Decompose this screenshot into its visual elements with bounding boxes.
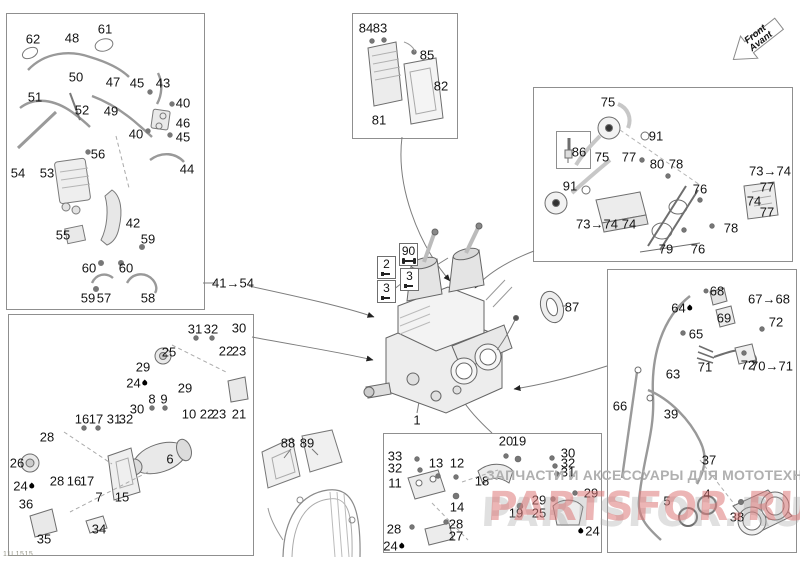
- part-callout: 11: [388, 477, 402, 490]
- part-callout: 43: [156, 77, 170, 90]
- part-number: 36: [19, 498, 33, 511]
- part-callout: 13: [429, 457, 443, 470]
- part-callout: 77: [760, 206, 774, 219]
- part-callout: 36: [19, 498, 33, 511]
- part-callout: 45: [130, 77, 144, 90]
- part-callout: 40: [129, 128, 143, 141]
- part-number: 67→68: [748, 293, 790, 306]
- part-number: 10: [182, 408, 196, 421]
- part-callout: 56: [91, 148, 105, 161]
- part-callout: 35: [37, 533, 51, 546]
- part-number: 56: [91, 148, 105, 161]
- part-callout: 80: [650, 158, 664, 171]
- part-callout: 76: [691, 243, 705, 256]
- part-callout: 84: [359, 22, 373, 35]
- part-number: 51: [28, 91, 42, 104]
- watermark-brand: PARTSFOR.RU: [487, 484, 800, 530]
- part-number: 83: [373, 22, 387, 35]
- part-callout: 40: [176, 97, 190, 110]
- part-number: 75: [595, 151, 609, 164]
- part-callout: 31: [188, 323, 202, 336]
- part-number: 30: [232, 322, 246, 335]
- parts-diagram-page: 6248615047454351524940464045564454534255…: [0, 0, 800, 565]
- part-callout: 37: [702, 454, 716, 467]
- part-number: 87: [565, 301, 579, 314]
- part-number: 45: [130, 77, 144, 90]
- part-number: 64: [671, 302, 685, 315]
- part-callout: 85: [420, 49, 434, 62]
- part-number: 66: [613, 400, 627, 413]
- part-number: 32: [388, 462, 402, 475]
- part-number: 73→74: [576, 218, 618, 231]
- part-number: 65: [689, 328, 703, 341]
- lubricant-droplet-icon: [29, 482, 36, 489]
- part-number: 42: [126, 217, 140, 230]
- part-number: 59: [141, 233, 155, 246]
- part-callout: 32: [204, 323, 218, 336]
- part-number: 71: [698, 361, 712, 374]
- part-callout: 71: [698, 361, 712, 374]
- part-number: 82: [434, 80, 448, 93]
- part-number: 6: [166, 453, 173, 466]
- part-callout: 29: [178, 382, 192, 395]
- part-callout: 48: [65, 32, 79, 45]
- part-callout: 53: [40, 167, 54, 180]
- part-number: 62: [26, 33, 40, 46]
- part-number: 69: [717, 312, 731, 325]
- part-number: 37: [702, 454, 716, 467]
- part-callout: 49: [104, 105, 118, 118]
- part-number: 91: [649, 130, 663, 143]
- part-callout: 64: [671, 302, 692, 315]
- screw-icon: [407, 285, 413, 287]
- part-number: 12: [450, 457, 464, 470]
- part-callout: 28: [40, 431, 54, 444]
- part-callout: 23: [212, 408, 226, 421]
- part-callout: 42: [126, 217, 140, 230]
- part-number: 1: [413, 414, 420, 427]
- part-number: 53: [40, 167, 54, 180]
- part-number: 49: [104, 105, 118, 118]
- part-number: 32: [119, 413, 133, 426]
- part-callout: 24: [126, 377, 147, 390]
- part-callout: 46: [176, 117, 190, 130]
- part-callout: 63: [666, 368, 680, 381]
- screw-icon: [384, 297, 390, 299]
- part-callout: 60: [82, 262, 96, 275]
- engine-illustration: [364, 223, 519, 413]
- part-callout: 78: [669, 158, 683, 171]
- part-number: 59: [81, 292, 95, 305]
- part-callout: 45: [176, 131, 190, 144]
- part-callout: 23: [232, 345, 246, 358]
- part-callout: 65: [689, 328, 703, 341]
- part-callout: 51: [28, 91, 42, 104]
- part-number: 11: [388, 477, 402, 490]
- part-number: 3: [406, 271, 413, 282]
- part-number: 28: [50, 475, 64, 488]
- part-callout: 15: [115, 491, 129, 504]
- part-callout: 41→54: [212, 277, 254, 290]
- part-callout: 19: [512, 435, 526, 448]
- part-callout: 28: [50, 475, 64, 488]
- part-callout: 29: [136, 361, 150, 374]
- part-number: 3: [383, 283, 390, 294]
- part-callout: 87: [565, 301, 579, 314]
- sensor-87-illustration: [537, 288, 568, 325]
- part-callout: 70→71: [751, 360, 793, 373]
- part-callout: 54: [11, 167, 25, 180]
- wrench-icon: [404, 260, 414, 262]
- part-number: 46: [176, 117, 190, 130]
- option-callout: 3: [377, 280, 396, 303]
- part-number: 17: [89, 413, 103, 426]
- part-number: 27: [449, 530, 463, 543]
- part-number: 58: [141, 292, 155, 305]
- part-number: 75: [601, 96, 615, 109]
- part-number: 47: [106, 76, 120, 89]
- part-callout: 78: [724, 222, 738, 235]
- part-callout: 61: [98, 23, 112, 36]
- part-callout: 60: [119, 262, 133, 275]
- part-number: 24: [383, 540, 397, 553]
- part-number: 72: [769, 316, 783, 329]
- part-callout: 6: [166, 453, 173, 466]
- part-number: 73→74: [749, 165, 791, 178]
- part-callout: 82: [434, 80, 448, 93]
- part-number: 45: [176, 131, 190, 144]
- part-callout: 10: [182, 408, 196, 421]
- part-callout: 83: [373, 22, 387, 35]
- part-callout: 91: [649, 130, 663, 143]
- part-number: 24: [126, 377, 140, 390]
- part-callout: 34: [92, 523, 106, 536]
- part-callout: 44: [180, 163, 194, 176]
- part-callout: 14: [450, 501, 464, 514]
- part-number: 80: [650, 158, 664, 171]
- part-number: 63: [666, 368, 680, 381]
- part-number: 79: [659, 243, 673, 256]
- part-number: 43: [156, 77, 170, 90]
- part-callout: 24: [13, 480, 34, 493]
- part-callout: 62: [26, 33, 40, 46]
- part-callout: 27: [449, 530, 463, 543]
- part-number: 77: [760, 206, 774, 219]
- starter-sketch: [21, 336, 248, 537]
- part-number: 77: [622, 151, 636, 164]
- part-callout: 69: [717, 312, 731, 325]
- option-callout: 2: [377, 256, 396, 279]
- part-callout: 76: [693, 183, 707, 196]
- part-callout: 32: [388, 462, 402, 475]
- part-number: 48: [65, 32, 79, 45]
- part-callout: 17: [89, 413, 103, 426]
- part-callout: 25: [162, 346, 176, 359]
- part-number: 16: [75, 413, 89, 426]
- watermark-text-ru: ЗАПЧАСТИ И АКСЕССУАРЫ ДЛЯ МОТОТЕХНИКИ: [486, 467, 800, 483]
- part-number: 78: [669, 158, 683, 171]
- part-callout: 9: [160, 393, 167, 406]
- lubricant-droplet-icon: [687, 304, 694, 311]
- part-callout: 77: [760, 181, 774, 194]
- part-number: 28: [40, 431, 54, 444]
- part-number: 29: [178, 382, 192, 395]
- part-callout: 8: [148, 393, 155, 406]
- part-number: 2: [383, 259, 390, 270]
- option-callout: 3: [400, 268, 419, 291]
- part-callout: 1: [413, 414, 420, 427]
- part-callout: 59: [81, 292, 95, 305]
- part-number: 40: [129, 128, 143, 141]
- part-number: 44: [180, 163, 194, 176]
- part-callout: 24: [383, 540, 404, 553]
- part-callout: 77: [622, 151, 636, 164]
- part-number: 57: [97, 292, 111, 305]
- part-number: 14: [450, 501, 464, 514]
- part-number: 61: [98, 23, 112, 36]
- part-callout: 67→68: [748, 293, 790, 306]
- part-callout: 58: [141, 292, 155, 305]
- part-number: 50: [69, 71, 83, 84]
- part-callout: 57: [97, 292, 111, 305]
- part-callout: 52: [75, 104, 89, 117]
- part-callout: 72: [769, 316, 783, 329]
- part-callout: 74: [622, 218, 636, 231]
- part-number: 88: [281, 437, 295, 450]
- part-number: 86: [572, 146, 586, 159]
- part-number: 9: [160, 393, 167, 406]
- part-callout: 79: [659, 243, 673, 256]
- part-callout: 39: [664, 408, 678, 421]
- part-number: 31: [188, 323, 202, 336]
- part-number: 26: [10, 457, 24, 470]
- part-number: 15: [115, 491, 129, 504]
- part-number: 85: [420, 49, 434, 62]
- part-number: 19: [512, 435, 526, 448]
- part-callout: 81: [372, 114, 386, 127]
- screw-icon: [384, 273, 390, 275]
- part-number: 34: [92, 523, 106, 536]
- option-callout: 90: [399, 243, 418, 266]
- part-number: 89: [300, 437, 314, 450]
- part-callout: 73→74: [576, 218, 618, 231]
- part-callout: 66: [613, 400, 627, 413]
- part-number: 77: [760, 181, 774, 194]
- part-callout: 50: [69, 71, 83, 84]
- part-number: 28: [387, 523, 401, 536]
- lubricant-droplet-icon: [142, 379, 149, 386]
- part-number: 21: [232, 408, 246, 421]
- part-callout: 73→74: [749, 165, 791, 178]
- part-number: 90: [402, 246, 415, 257]
- part-number: 17: [80, 475, 94, 488]
- document-code: 11L1515: [3, 551, 33, 558]
- part-callout: 68: [710, 285, 724, 298]
- part-callout: 88: [281, 437, 295, 450]
- part-number: 55: [56, 229, 70, 242]
- part-number: 39: [664, 408, 678, 421]
- part-callout: 89: [300, 437, 314, 450]
- part-callout: 59: [141, 233, 155, 246]
- part-callout: 7: [95, 491, 102, 504]
- part-number: 74: [622, 218, 636, 231]
- part-number: 91: [563, 180, 577, 193]
- part-callout: 75: [595, 151, 609, 164]
- part-number: 60: [119, 262, 133, 275]
- part-number: 32: [204, 323, 218, 336]
- part-callout: 17: [80, 475, 94, 488]
- part-callout: 21: [232, 408, 246, 421]
- part-callout: 16: [75, 413, 89, 426]
- part-callout: 26: [10, 457, 24, 470]
- part-number: 68: [710, 285, 724, 298]
- part-number: 8: [148, 393, 155, 406]
- part-number: 29: [136, 361, 150, 374]
- part-number: 84: [359, 22, 373, 35]
- lubricant-droplet-icon: [399, 542, 406, 549]
- part-callout: 75: [601, 96, 615, 109]
- part-number: 60: [82, 262, 96, 275]
- part-number: 25: [162, 346, 176, 359]
- part-number: 76: [693, 183, 707, 196]
- part-number: 7: [95, 491, 102, 504]
- part-number: 52: [75, 104, 89, 117]
- part-number: 54: [11, 167, 25, 180]
- part-number: 78: [724, 222, 738, 235]
- part-number: 13: [429, 457, 443, 470]
- part-callout: 28: [387, 523, 401, 536]
- part-number: 40: [176, 97, 190, 110]
- part-callout: 32: [119, 413, 133, 426]
- part-number: 70→71: [751, 360, 793, 373]
- part-number: 81: [372, 114, 386, 127]
- part-number: 24: [13, 480, 27, 493]
- part-callout: 55: [56, 229, 70, 242]
- part-callout: 30: [232, 322, 246, 335]
- part-callout: 86: [572, 146, 586, 159]
- part-callout: 12: [450, 457, 464, 470]
- part-number: 41→54: [212, 277, 254, 290]
- part-number: 35: [37, 533, 51, 546]
- part-callout: 47: [106, 76, 120, 89]
- part-number: 23: [212, 408, 226, 421]
- part-callout: 91: [563, 180, 577, 193]
- part-number: 76: [691, 243, 705, 256]
- part-number: 23: [232, 345, 246, 358]
